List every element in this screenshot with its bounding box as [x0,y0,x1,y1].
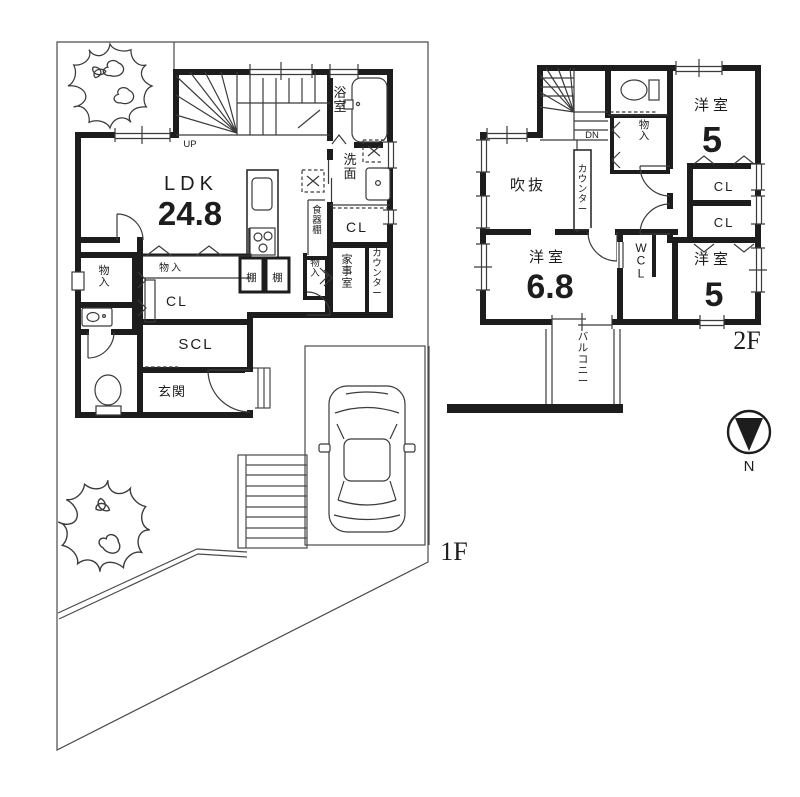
approach-steps [238,455,307,548]
north-label: N [744,458,755,475]
label-west-room-se: 洋室 [694,251,732,268]
label-storage-right: 物入 [310,257,320,279]
hand-basin [82,308,112,326]
label-cl-upper: CL [714,179,735,194]
door-arcs-2f [588,166,670,261]
label-dn: DN [585,130,599,141]
floorplan-page: LDK 24.8 UP 浴室 洗面 食器棚 CL 棚 棚 物入 物入 物入 CL… [0,0,800,797]
label-west-room-sw: 洋室 [529,249,567,266]
label-west-room-sw-area: 6.8 [526,268,573,306]
label-up: UP [183,139,196,150]
wall-niche [72,272,84,290]
label-counter-2f: カウンター [578,164,588,215]
label-cl-right: CL [346,219,368,235]
tree-icon [68,44,152,128]
label-entrance: 玄関 [158,384,186,399]
label-storage-2f: 物入 [639,118,650,142]
bathtub [344,78,387,142]
label-cl-lower: CL [714,215,735,230]
label-wcl: WCL [635,241,647,280]
label-west-room-se-area: 5 [705,276,724,314]
label-utility: 家事室 [342,252,353,289]
balcony [447,329,623,413]
label-void: 吹抜 [510,177,546,194]
label-storage-left: 物入 [99,263,110,289]
toilet-icon [95,375,121,415]
label-shelf-a: 棚 [246,271,257,284]
floorplan-drawing: LDK 24.8 UP 浴室 洗面 食器棚 CL 棚 棚 物入 物入 物入 CL… [0,0,800,797]
floor1-title: 1F [440,537,467,566]
north-arrow-icon: N [728,411,770,475]
label-shelf-b: 棚 [272,271,283,284]
label-bath: 浴室 [333,85,346,114]
sliding-door-1f [325,160,335,202]
washbasin [366,168,390,200]
label-cl-hall: CL [166,293,188,309]
floor2-title: 2F [733,326,760,355]
label-balcony: バルコニー [578,331,589,388]
label-ldk-area: 24.8 [158,195,222,232]
floor2-plan: 吹抜 カウンター DN 物入 洋室 5 CL CL 洋室 6.8 WCL 洋室 … [447,59,767,413]
label-ldk: LDK [164,173,218,195]
label-dish-shelf: 食器棚 [312,204,322,236]
car-icon [319,386,415,532]
floor1-plan: LDK 24.8 UP 浴室 洗面 食器棚 CL 棚 棚 物入 物入 物入 CL… [72,62,397,415]
toilet-2f-icon [608,80,668,115]
label-counter-1f: カウンター [372,248,382,299]
stairs-1f [176,72,330,135]
kitchen-island [247,170,278,258]
label-west-room-ne: 洋室 [694,97,732,114]
label-storage-hall: 物入 [159,261,183,274]
label-scl: SCL [178,336,213,353]
label-washroom: 洗面 [343,152,356,181]
label-west-room-ne-area: 5 [702,119,722,160]
